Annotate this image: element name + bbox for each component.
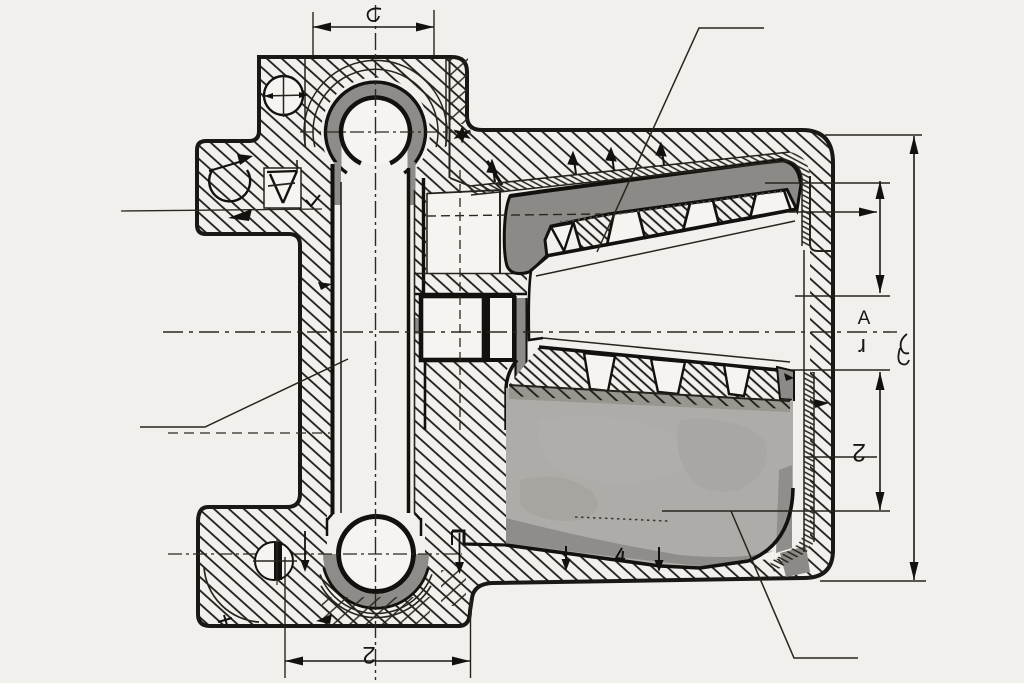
svg-text:2: 2 [362, 641, 375, 668]
svg-text:r: r [858, 333, 866, 360]
svg-text:A: A [858, 308, 871, 329]
svg-text:2: 2 [852, 438, 866, 466]
